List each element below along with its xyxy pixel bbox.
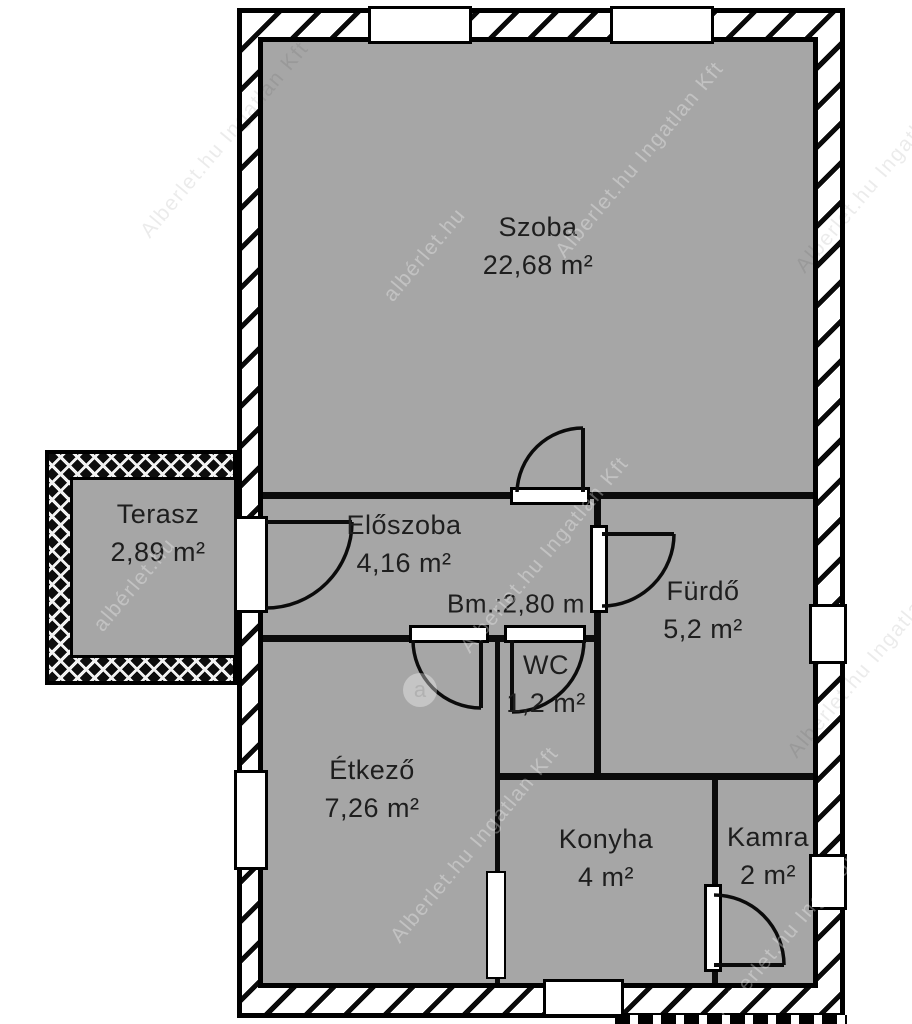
room-area: 7,26 m²	[324, 789, 419, 827]
wall-konyha-top	[497, 773, 813, 780]
room-area: 22,68 m²	[483, 246, 594, 284]
room-area: 2,89 m²	[110, 533, 205, 571]
room-name: Kamra	[727, 818, 809, 856]
window-etkezo-left	[234, 770, 268, 870]
room-area: 1,2 m²	[506, 684, 586, 722]
room-area: 4 m²	[559, 858, 654, 896]
room-label-szoba: Szoba 22,68 m²	[483, 208, 594, 284]
window-konyha-bottom	[543, 979, 624, 1017]
room-label-wc: WC 1,2 m²	[506, 646, 586, 722]
room-name: Étkező	[324, 751, 419, 789]
room-name: Előszoba	[346, 506, 461, 544]
window-top-left	[368, 6, 472, 44]
door-threshold-wc	[504, 625, 586, 643]
room-label-kamra: Kamra 2 m²	[727, 818, 809, 894]
room-name: Konyha	[559, 820, 654, 858]
room-label-konyha: Konyha 4 m²	[559, 820, 654, 896]
window-furdo-right	[809, 604, 847, 664]
room-label-terasz: Terasz 2,89 m²	[110, 495, 205, 571]
door-threshold-szoba	[510, 487, 590, 505]
window-kamra-right	[809, 854, 847, 910]
door-threshold-etkezo	[409, 625, 489, 643]
room-name: WC	[506, 646, 586, 684]
room-label-eloszoba: Előszoba 4,16 m²	[346, 506, 461, 582]
room-name: Szoba	[483, 208, 594, 246]
door-jamb-kamra	[704, 884, 722, 972]
room-label-etkezo: Étkező 7,26 m²	[324, 751, 419, 827]
passage-etkezo-konyha	[486, 871, 506, 979]
room-area: 5,2 m²	[663, 610, 743, 648]
door-opening-terrace	[234, 516, 268, 613]
room-name: Terasz	[110, 495, 205, 533]
room-area: 2 m²	[727, 856, 809, 894]
floor-plan: Szoba 22,68 m² Terasz 2,89 m² Előszoba 4…	[0, 0, 912, 1024]
window-top-right	[610, 6, 714, 44]
ceiling-height-label: Bm.:2,80 m	[447, 589, 585, 620]
room-label-furdo: Fürdő 5,2 m²	[663, 572, 743, 648]
bottom-tooth-strip	[615, 1015, 847, 1024]
door-jamb-furdo	[590, 525, 608, 613]
room-name: Fürdő	[663, 572, 743, 610]
room-area: 4,16 m²	[346, 544, 461, 582]
